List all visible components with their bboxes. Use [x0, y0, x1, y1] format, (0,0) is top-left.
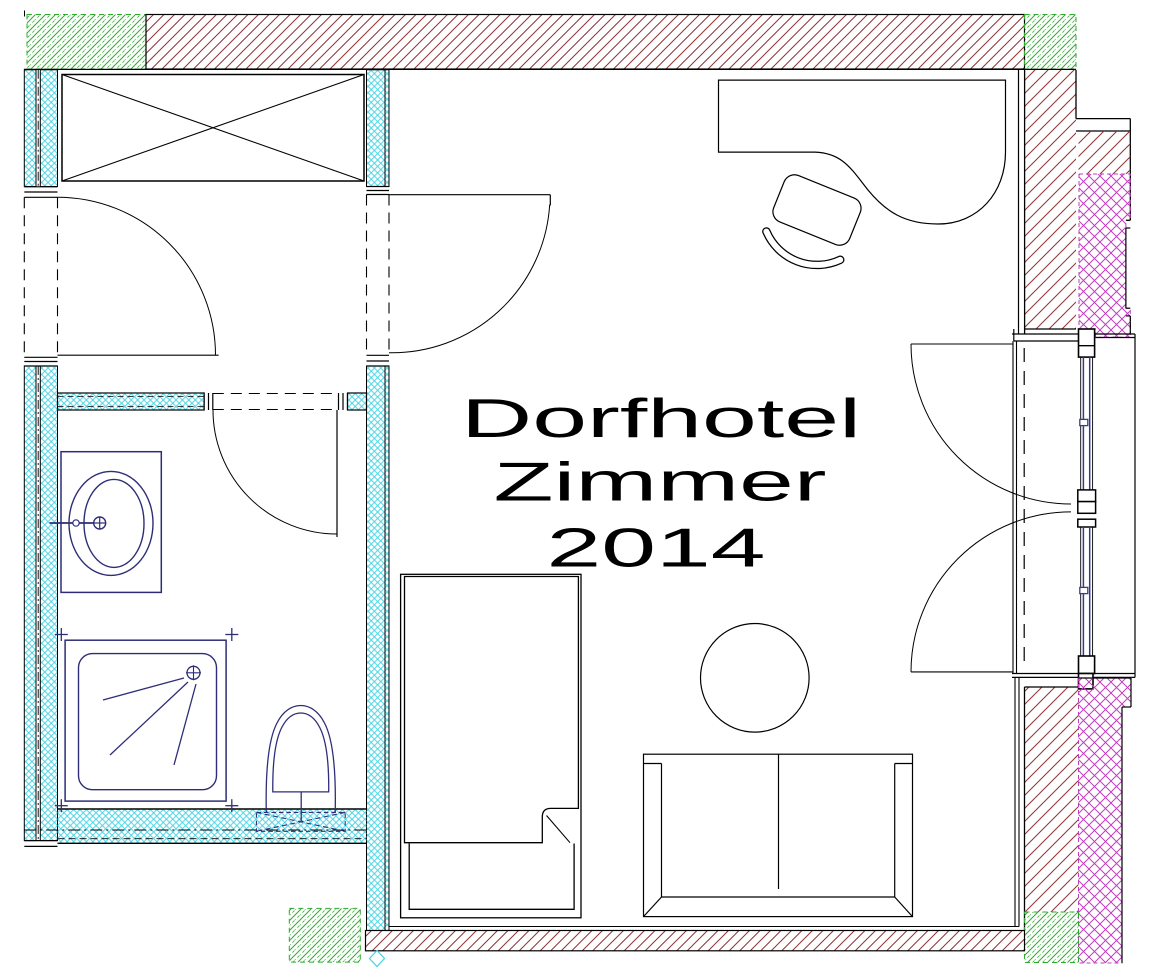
svg-text:Dorfhotel: Dorfhotel [461, 387, 861, 449]
svg-text:Zimmer: Zimmer [494, 451, 827, 513]
svg-text:2014: 2014 [547, 517, 766, 579]
